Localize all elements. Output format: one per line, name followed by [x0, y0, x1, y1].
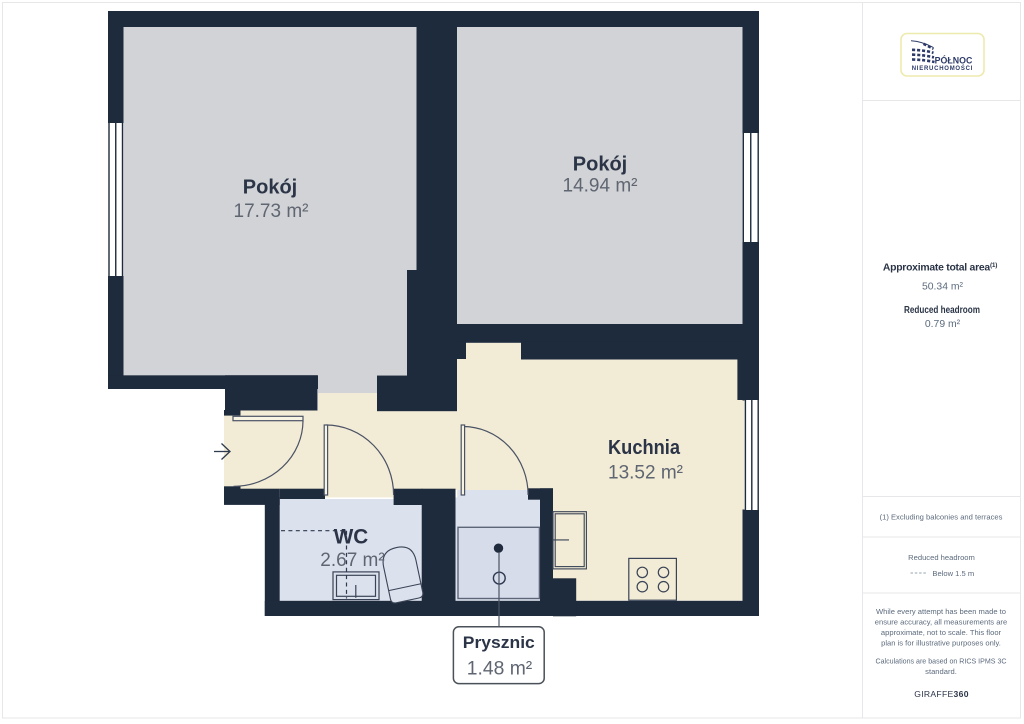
- svg-text:PÓŁNOC: PÓŁNOC: [935, 55, 973, 66]
- svg-text:standard.: standard.: [925, 667, 957, 676]
- svg-text:approximate, not to scale. Thi: approximate, not to scale. This floor: [881, 628, 1002, 637]
- svg-text:17.73 m²: 17.73 m²: [234, 201, 309, 222]
- svg-text:Pokój: Pokój: [573, 153, 627, 175]
- svg-text:Reduced headroom: Reduced headroom: [908, 553, 975, 562]
- svg-text:2.67 m²: 2.67 m²: [320, 550, 384, 571]
- svg-text:plan is for illustrative purpo: plan is for illustrative purposes only.: [881, 639, 1001, 648]
- svg-text:1.48 m²: 1.48 m²: [467, 658, 533, 679]
- svg-text:50.34 m²: 50.34 m²: [922, 282, 964, 293]
- svg-text:WC: WC: [334, 525, 369, 548]
- svg-text:13.52 m²: 13.52 m²: [608, 463, 683, 484]
- svg-text:Reduced headroom: Reduced headroom: [904, 305, 980, 316]
- svg-text:Pokój: Pokój: [243, 176, 297, 198]
- svg-text:Approximate total area(1): Approximate total area(1): [883, 262, 997, 274]
- svg-text:14.94 m²: 14.94 m²: [563, 175, 638, 196]
- svg-text:Prysznic: Prysznic: [463, 633, 535, 652]
- svg-text:(1) Excluding balconies and te: (1) Excluding balconies and terraces: [880, 512, 1003, 521]
- svg-text:Below 1.5 m: Below 1.5 m: [932, 569, 974, 578]
- svg-text:Calculations are based on RICS: Calculations are based on RICS IPMS 3C: [876, 657, 1007, 666]
- svg-text:ensure accuracy, all measureme: ensure accuracy, all measurements are: [875, 618, 1007, 627]
- svg-text:NIERUCHOMOŚCI: NIERUCHOMOŚCI: [912, 65, 973, 72]
- svg-text:0.79 m²: 0.79 m²: [925, 319, 961, 330]
- svg-text:While every attempt has been m: While every attempt has been made to: [876, 607, 1006, 616]
- svg-text:Kuchnia: Kuchnia: [608, 436, 681, 459]
- svg-text:GIRAFFE360: GIRAFFE360: [914, 689, 969, 699]
